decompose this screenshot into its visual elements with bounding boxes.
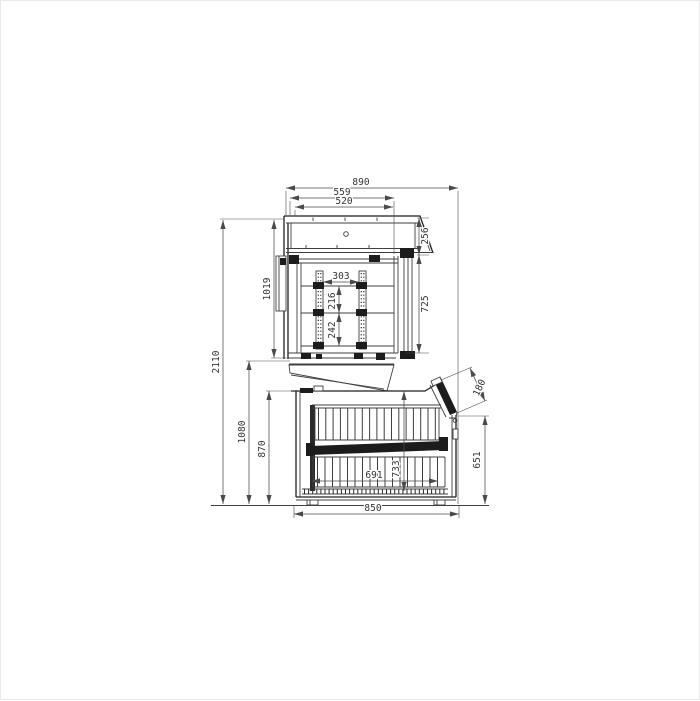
- upper-unit-base: [288, 353, 398, 364]
- side-lock: [453, 429, 458, 439]
- dim-label-870: 870: [257, 440, 268, 457]
- lower-unit: [211, 377, 489, 506]
- lid-hinge: [314, 386, 323, 391]
- dim-label-256: 256: [420, 227, 431, 244]
- dim-label-1080: 1080: [237, 420, 248, 443]
- dimension-chest-height: 870: [257, 391, 295, 504]
- dim-label-180: 180: [471, 378, 488, 398]
- dim-label-216: 216: [327, 292, 338, 309]
- dim-label-725: 725: [420, 295, 431, 312]
- dim-label-651: 651: [472, 451, 483, 468]
- canopy-end-cap: [400, 248, 414, 258]
- dim-label-890: 890: [352, 177, 369, 188]
- technical-drawing: 890 559 520 2110 1019 108: [1, 1, 700, 701]
- dimension-shelf-gap-lower: 242: [327, 313, 339, 346]
- dimension-shelf-gap-upper: 216: [327, 286, 339, 313]
- rear-panel: [276, 256, 286, 311]
- dim-label-242: 242: [327, 321, 338, 338]
- dimension-overall-height: 2110: [211, 219, 284, 504]
- shelves: [301, 282, 394, 349]
- dimension-door-height: 725: [406, 255, 431, 353]
- dim-label-691: 691: [365, 470, 382, 481]
- dim-label-303: 303: [332, 271, 349, 282]
- dimension-lower-section-height: 1080: [237, 361, 290, 504]
- dimensions: 890 559 520 2110 1019 108: [211, 177, 489, 518]
- dimension-chest-inner-depth: 691: [311, 470, 438, 481]
- glass-door: [400, 258, 415, 359]
- upper-basket: [312, 405, 441, 440]
- door-bottom-hinge: [400, 351, 415, 359]
- dim-label-850: 850: [364, 503, 381, 514]
- dim-label-2110: 2110: [211, 350, 222, 373]
- upper-unit: [276, 216, 433, 391]
- dim-label-1019: 1019: [262, 277, 273, 300]
- dimension-chest-inner-height: 733: [391, 391, 404, 491]
- drawing-canvas: 890 559 520 2110 1019 108: [0, 0, 700, 700]
- transition-skirt: [289, 365, 394, 391]
- dim-label-733: 733: [391, 460, 402, 477]
- canopy-lamp-detail: [344, 232, 349, 237]
- interior-liner: [289, 255, 398, 353]
- dimension-front-height: 651: [458, 416, 489, 504]
- dimension-canopy-inner: 520: [295, 196, 393, 216]
- bottom-rail: [302, 489, 448, 494]
- dimension-canopy-front-height: 256: [417, 218, 431, 255]
- dim-label-520: 520: [335, 196, 352, 207]
- dimension-shelf-depth: 303: [323, 271, 359, 282]
- canopy: [286, 218, 433, 259]
